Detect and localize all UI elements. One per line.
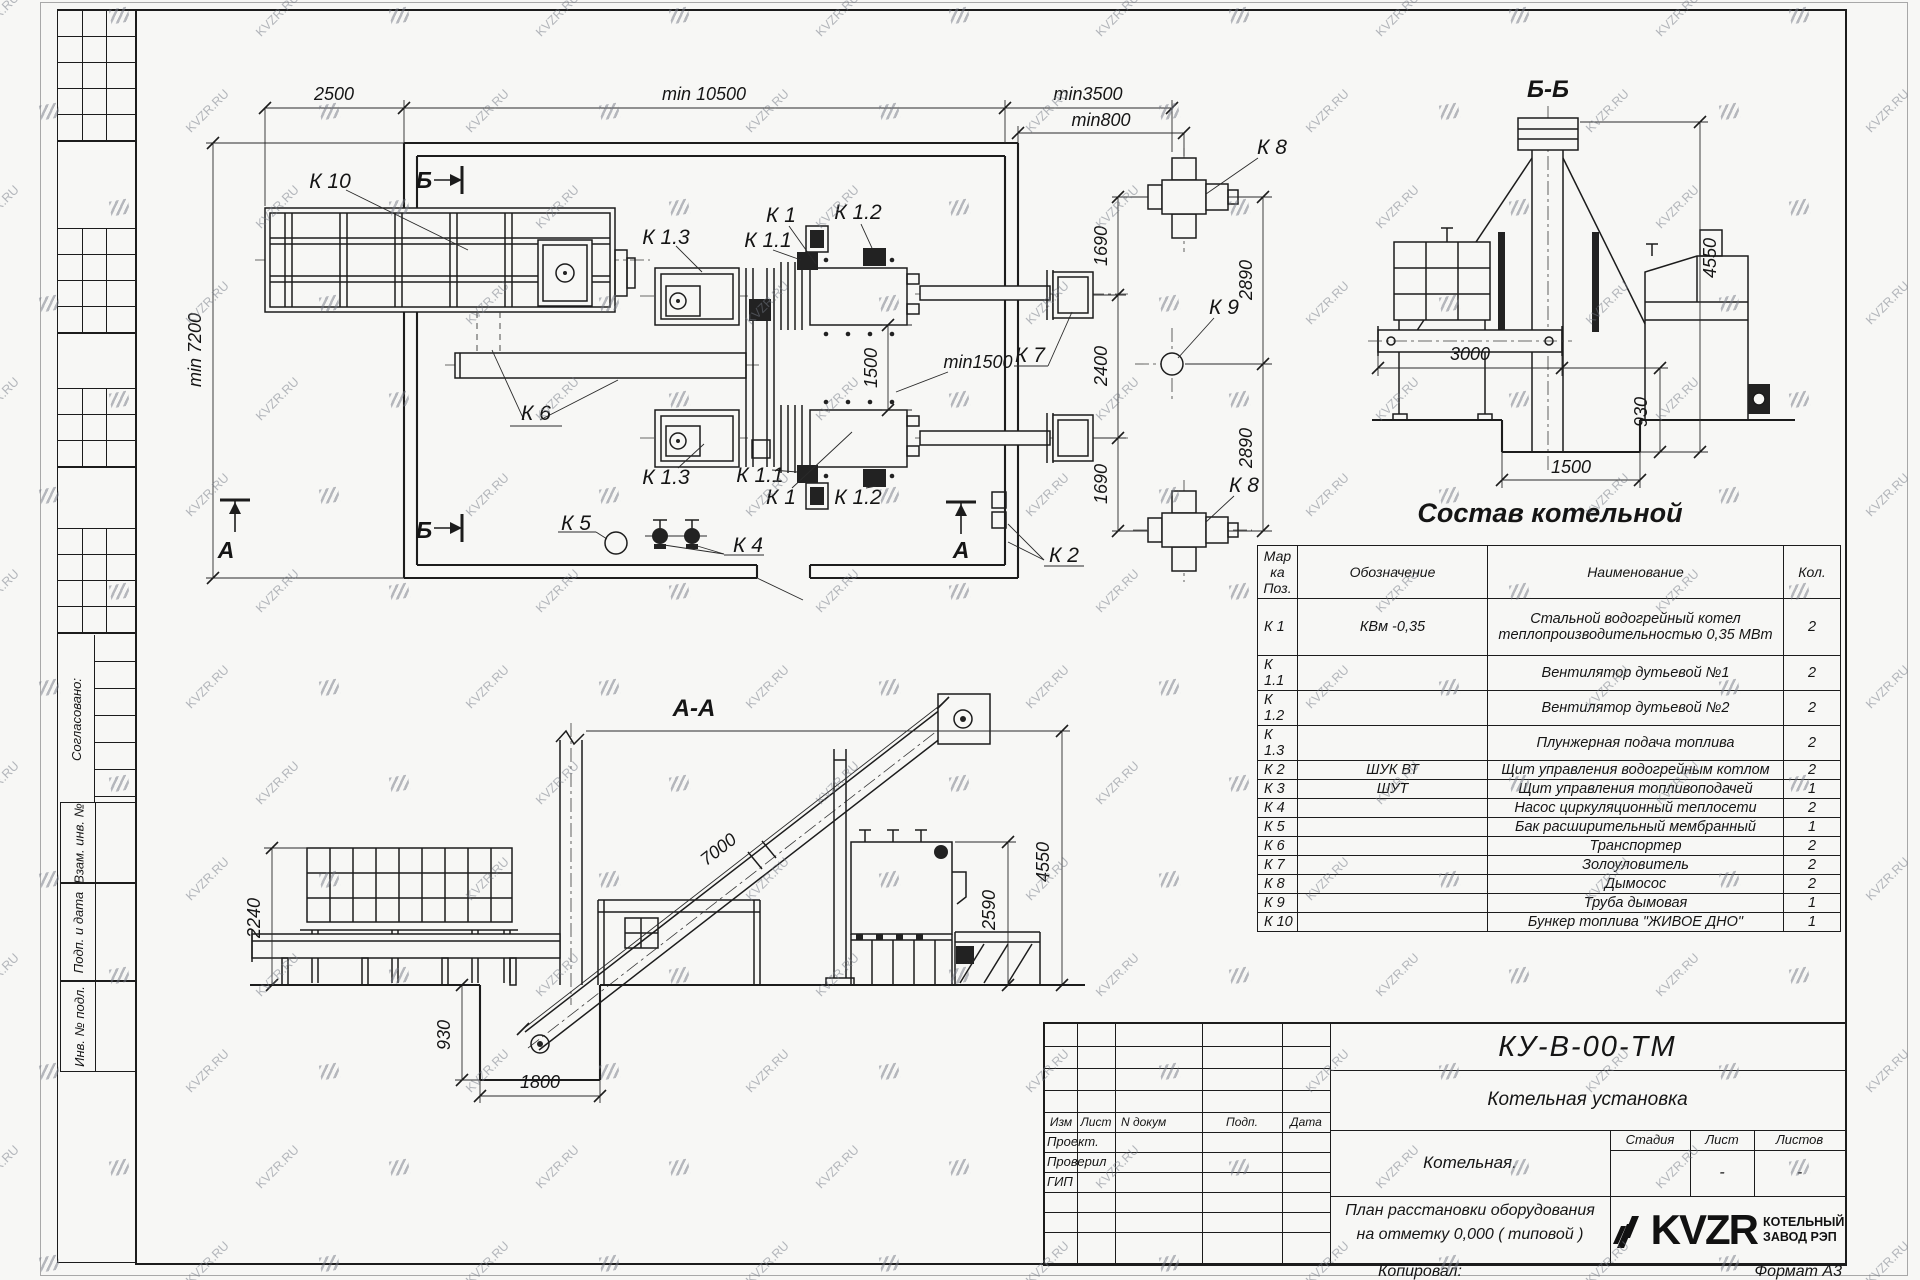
label-k5: К 5 [561,512,591,535]
row-qty: 2 [1784,875,1841,894]
label-k6: К 6 [521,402,551,425]
aa-dim-930: 930 [434,1020,454,1050]
feeder-k13-bottom [655,410,739,467]
bb-dim-3000: 3000 [1450,344,1490,364]
dim-2890-bottom: 2890 [1236,428,1256,469]
section-letter-a-right: А [952,537,970,563]
col-ndoc: N докум [1115,1112,1208,1132]
section-letter-b-bottom: Б [416,517,432,543]
sheet-value: - [1690,1150,1754,1196]
row-name: Труба дымовая [1488,894,1784,913]
section-letter-a-left: А [217,537,235,563]
row-qty: 1 [1784,913,1841,932]
sheet-title-line2: на отметку 0,000 ( типовой ) [1330,1226,1610,1250]
row-qty: 2 [1784,599,1841,656]
row-designation: ШУТ [1298,780,1488,799]
fuel-bunker-k10 [265,208,635,312]
table-row: К 6Транспортер2 [1258,837,1841,856]
row-designation: КВм -0,35 [1298,599,1488,656]
row-designation [1298,799,1488,818]
pumps-k4 [645,520,707,549]
boiler-k1-top [781,226,919,336]
row-mark: К 10 [1258,913,1298,932]
smoke-exhauster-k8-top [1148,158,1238,238]
row-name: Щит управления топливоподачей [1488,780,1784,799]
label-k8-top: К 8 [1257,136,1287,159]
section-bb-title: Б-Б [1527,76,1569,103]
format-label: Формат А3 [1710,1263,1842,1280]
flue-duct-bottom [920,431,1050,445]
aa-dim-2240: 2240 [244,898,264,939]
kvzr-caption-line2: ЗАВОД РЭП [1763,1230,1844,1245]
label-k13-bottom: К 1.3 [642,466,690,489]
label-k10: К 10 [309,170,351,193]
col-name: Наименование [1488,546,1784,599]
row-qty: 2 [1784,726,1841,761]
aa-platform [955,932,1040,985]
ash-collector-k7-top [1047,270,1093,320]
row-name: Стальной водогрейный котел теплопроизвод… [1488,599,1784,656]
label-k11-top: К 1.1 [744,229,791,252]
row-qty: 2 [1784,837,1841,856]
table-row: К 1КВм -0,35Стальной водогрейный котел т… [1258,599,1841,656]
sheets-header: Листов [1754,1130,1845,1150]
label-k7: К 7 [1015,344,1046,367]
label-k1-bottom: К 1 [766,486,796,509]
row-name: Бункер топлива "ЖИВОЕ ДНО" [1488,913,1784,932]
sheet-header: Лист [1690,1130,1754,1150]
row-qty: 1 [1784,780,1841,799]
section-bb: Б-Б 4550 3000 930 1500 [1368,76,1795,488]
row-designation [1298,913,1488,932]
row-name: Транспортер [1488,837,1784,856]
product-title: Котельная установка [1330,1070,1845,1130]
table-row: К 5Бак расширительный мембранный1 [1258,818,1841,837]
table-row: К 10Бункер топлива "ЖИВОЕ ДНО"1 [1258,913,1841,932]
kvzr-logo-text: KVZR [1651,1206,1757,1254]
dim-1690-bottom: 1690 [1091,464,1111,504]
aa-dim-4550: 4550 [1033,842,1053,882]
table-row: К 3ШУТЩит управления топливоподачей1 [1258,780,1841,799]
row-designation [1298,856,1488,875]
label-k13-top: К 1.3 [642,226,690,249]
aa-dim-1800: 1800 [520,1072,560,1092]
table-row: К 1.1Вентилятор дутьевой №12 [1258,656,1841,691]
expansion-tank-k5 [605,532,627,554]
section-aa-title: А-А [672,695,716,722]
copied-label: Копировал: [1330,1263,1510,1280]
row-designation [1298,875,1488,894]
label-k2: К 2 [1049,544,1079,567]
plan-dim-ticks [207,102,1269,584]
row-name: Золоуловитель [1488,856,1784,875]
dim-2890-top: 2890 [1236,260,1256,301]
bb-dim-4550: 4550 [1700,238,1720,278]
stage-header: Стадия [1610,1130,1690,1150]
role-proekt: Проект. [1047,1132,1137,1152]
kvzr-caption-line1: КОТЕЛЬНЫЙ [1763,1215,1844,1230]
dim-min800: min800 [1071,110,1130,130]
table-row: К 1.3Плунжерная подача топлива2 [1258,726,1841,761]
row-qty: 2 [1784,856,1841,875]
row-qty: 1 [1784,894,1841,913]
aa-bunker [300,848,518,983]
control-panels-k2 [992,492,1006,528]
dim-1690-top: 1690 [1091,226,1111,266]
dim-2500: 2500 [313,84,354,104]
section-letter-b-top: Б [416,167,432,193]
aa-horizontal-transporter [252,930,560,985]
aa-dim-7000: 7000 [696,829,740,869]
plan-dimensions [206,100,1272,578]
sheets-value: - [1754,1150,1845,1196]
row-designation: ШУК ВТ [1298,761,1488,780]
row-qty: 2 [1784,799,1841,818]
role-proveril: Проверил [1047,1152,1137,1172]
smoke-exhauster-k8-bottom [1148,491,1238,571]
parts-table-title: Состав котельной [1300,498,1800,529]
row-name: Плунжерная подача топлива [1488,726,1784,761]
row-mark: К 4 [1258,799,1298,818]
row-mark: К 8 [1258,875,1298,894]
col-izm: Изм [1045,1112,1077,1132]
aa-ground [250,985,1085,1080]
ash-collector-k7-bottom [1047,413,1093,463]
row-mark: К 7 [1258,856,1298,875]
title-block: КУ-В-00-ТМ Котельная установка Котельная… [1043,1022,1847,1266]
row-mark: К 9 [1258,894,1298,913]
table-row: К 2ШУК ВТЩит управления водогрейным котл… [1258,761,1841,780]
aa-support-tower [826,749,854,985]
role-gip: ГИП [1047,1172,1137,1192]
aa-boiler [851,830,966,985]
bb-bunker [1393,228,1492,420]
row-designation [1298,894,1488,913]
row-designation [1298,691,1488,726]
col-mark: Марка Поз. [1258,546,1298,599]
row-mark: К 2 [1258,761,1298,780]
doc-number: КУ-В-00-ТМ [1330,1024,1845,1070]
row-designation [1298,837,1488,856]
feeder-k13-top [655,268,739,325]
table-header-row: Марка Поз. Обозначение Наименование Кол. [1258,546,1841,599]
section-aa: А-А 7000 2240 930 1800 2590 4550 [244,694,1085,1103]
row-qty: 2 [1784,691,1841,726]
col-podp: Подп. [1202,1112,1282,1132]
row-mark: К 1.3 [1258,726,1298,761]
row-qty: 2 [1784,656,1841,691]
row-designation [1298,656,1488,691]
row-name: Вентилятор дутьевой №1 [1488,656,1784,691]
fuel-channel [746,268,774,467]
row-mark: К 1 [1258,599,1298,656]
col-list: Лист [1077,1112,1115,1132]
row-name: Насос циркуляционный теплосети [1488,799,1784,818]
row-name: Бак расширительный мембранный [1488,818,1784,837]
drawing-sheet: Согласовано: Взам. инв. № Подп. и дата И… [0,0,1920,1280]
dim-min3500: min3500 [1053,84,1122,104]
table-row: К 1.2Вентилятор дутьевой №22 [1258,691,1841,726]
kvzr-caption: КОТЕЛЬНЫЙ ЗАВОД РЭП [1763,1215,1844,1245]
door-leaf [757,578,803,600]
row-designation [1298,726,1488,761]
row-qty: 2 [1784,761,1841,780]
dim-1500: 1500 [861,348,881,388]
label-k12-bottom: К 1.2 [834,486,882,509]
row-name: Вентилятор дутьевой №2 [1488,691,1784,726]
bb-dim-930: 930 [1631,397,1651,427]
dim-2400: 2400 [1091,346,1111,387]
label-k11-bottom: К 1.1 [736,464,783,487]
label-k4: К 4 [733,534,763,557]
table-row: К 7Золоуловитель2 [1258,856,1841,875]
col-designation: Обозначение [1298,546,1488,599]
bb-ground [1372,420,1795,452]
dim-min7200: min 7200 [185,313,205,387]
label-k9: К 9 [1209,296,1239,319]
label-k1-top: К 1 [766,204,796,227]
kvzr-logo-icon [1611,1208,1645,1252]
parts-table: Марка Поз. Обозначение Наименование Кол.… [1257,545,1841,932]
row-qty: 1 [1784,818,1841,837]
label-k8-bottom: К 8 [1229,474,1259,497]
object-name: Котельная. [1330,1130,1610,1196]
logo-cell: KVZR КОТЕЛЬНЫЙ ЗАВОД РЭП [1610,1196,1845,1264]
flue-duct-top [920,286,1050,300]
row-mark: К 3 [1258,780,1298,799]
dim-min1500: min1500 [943,352,1012,372]
table-row: К 9Труба дымовая1 [1258,894,1841,913]
row-mark: К 1.1 [1258,656,1298,691]
row-name: Дымосос [1488,875,1784,894]
aa-dim-2590: 2590 [979,890,999,931]
plan-view: 2500 min 10500 min3500 min800 min 7200 1… [185,84,1287,600]
table-row: К 8Дымосос2 [1258,875,1841,894]
row-mark: К 1.2 [1258,691,1298,726]
sheet-title-line1: План расстановки оборудования [1330,1202,1610,1226]
bb-dim-1500: 1500 [1551,457,1591,477]
row-designation [1298,818,1488,837]
row-name: Щит управления водогрейным котлом [1488,761,1784,780]
label-k12-top: К 1.2 [834,201,882,224]
row-mark: К 5 [1258,818,1298,837]
col-qty: Кол. [1784,546,1841,599]
dim-min10500: min 10500 [662,84,746,104]
row-mark: К 6 [1258,837,1298,856]
col-data: Дата [1282,1112,1330,1132]
table-row: К 4Насос циркуляционный теплосети2 [1258,799,1841,818]
